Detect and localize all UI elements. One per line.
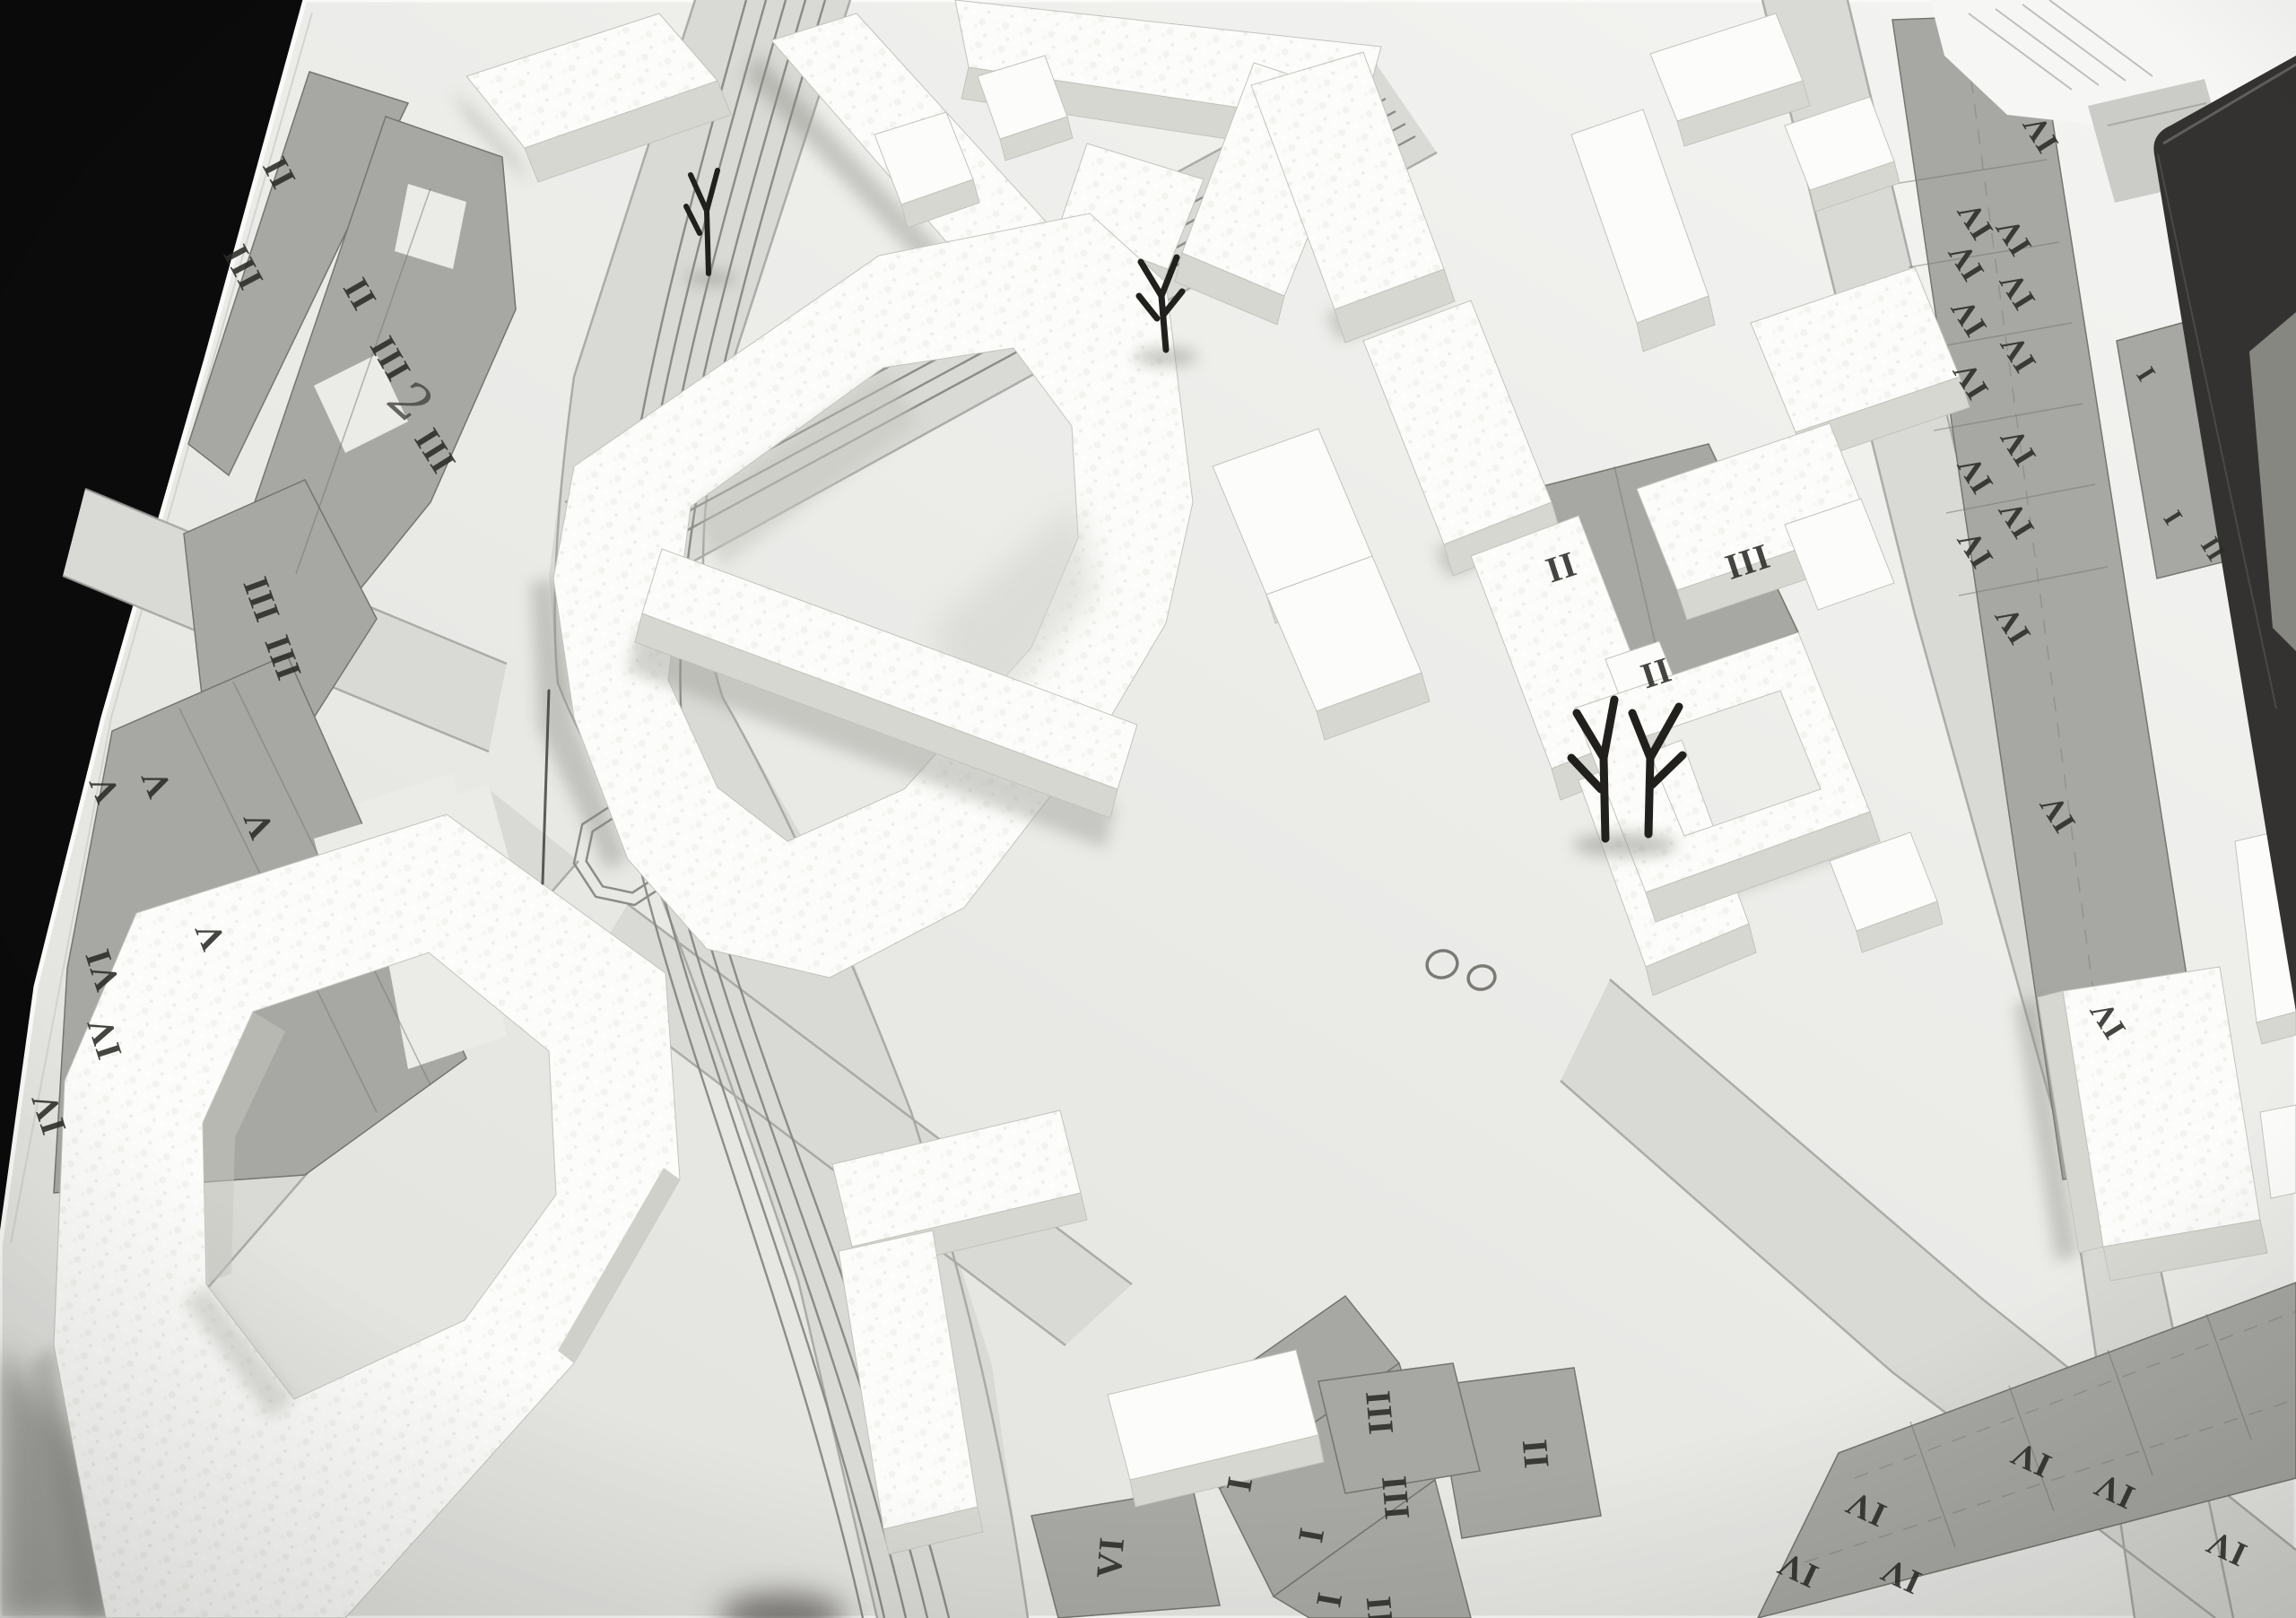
floor-count-numeral: II — [1514, 1437, 1557, 1470]
floor-count-numeral: II — [1358, 1594, 1401, 1618]
model-photo: IIIIIIIIII2IIIIIIIIIVVVVVIIVIVIIIIIIIIVI… — [0, 0, 2296, 1618]
floor-count-numeral: III — [1357, 1388, 1401, 1436]
floor-count-numeral: III — [1373, 1474, 1417, 1521]
floor-count-numeral: VI — [1088, 1535, 1132, 1580]
